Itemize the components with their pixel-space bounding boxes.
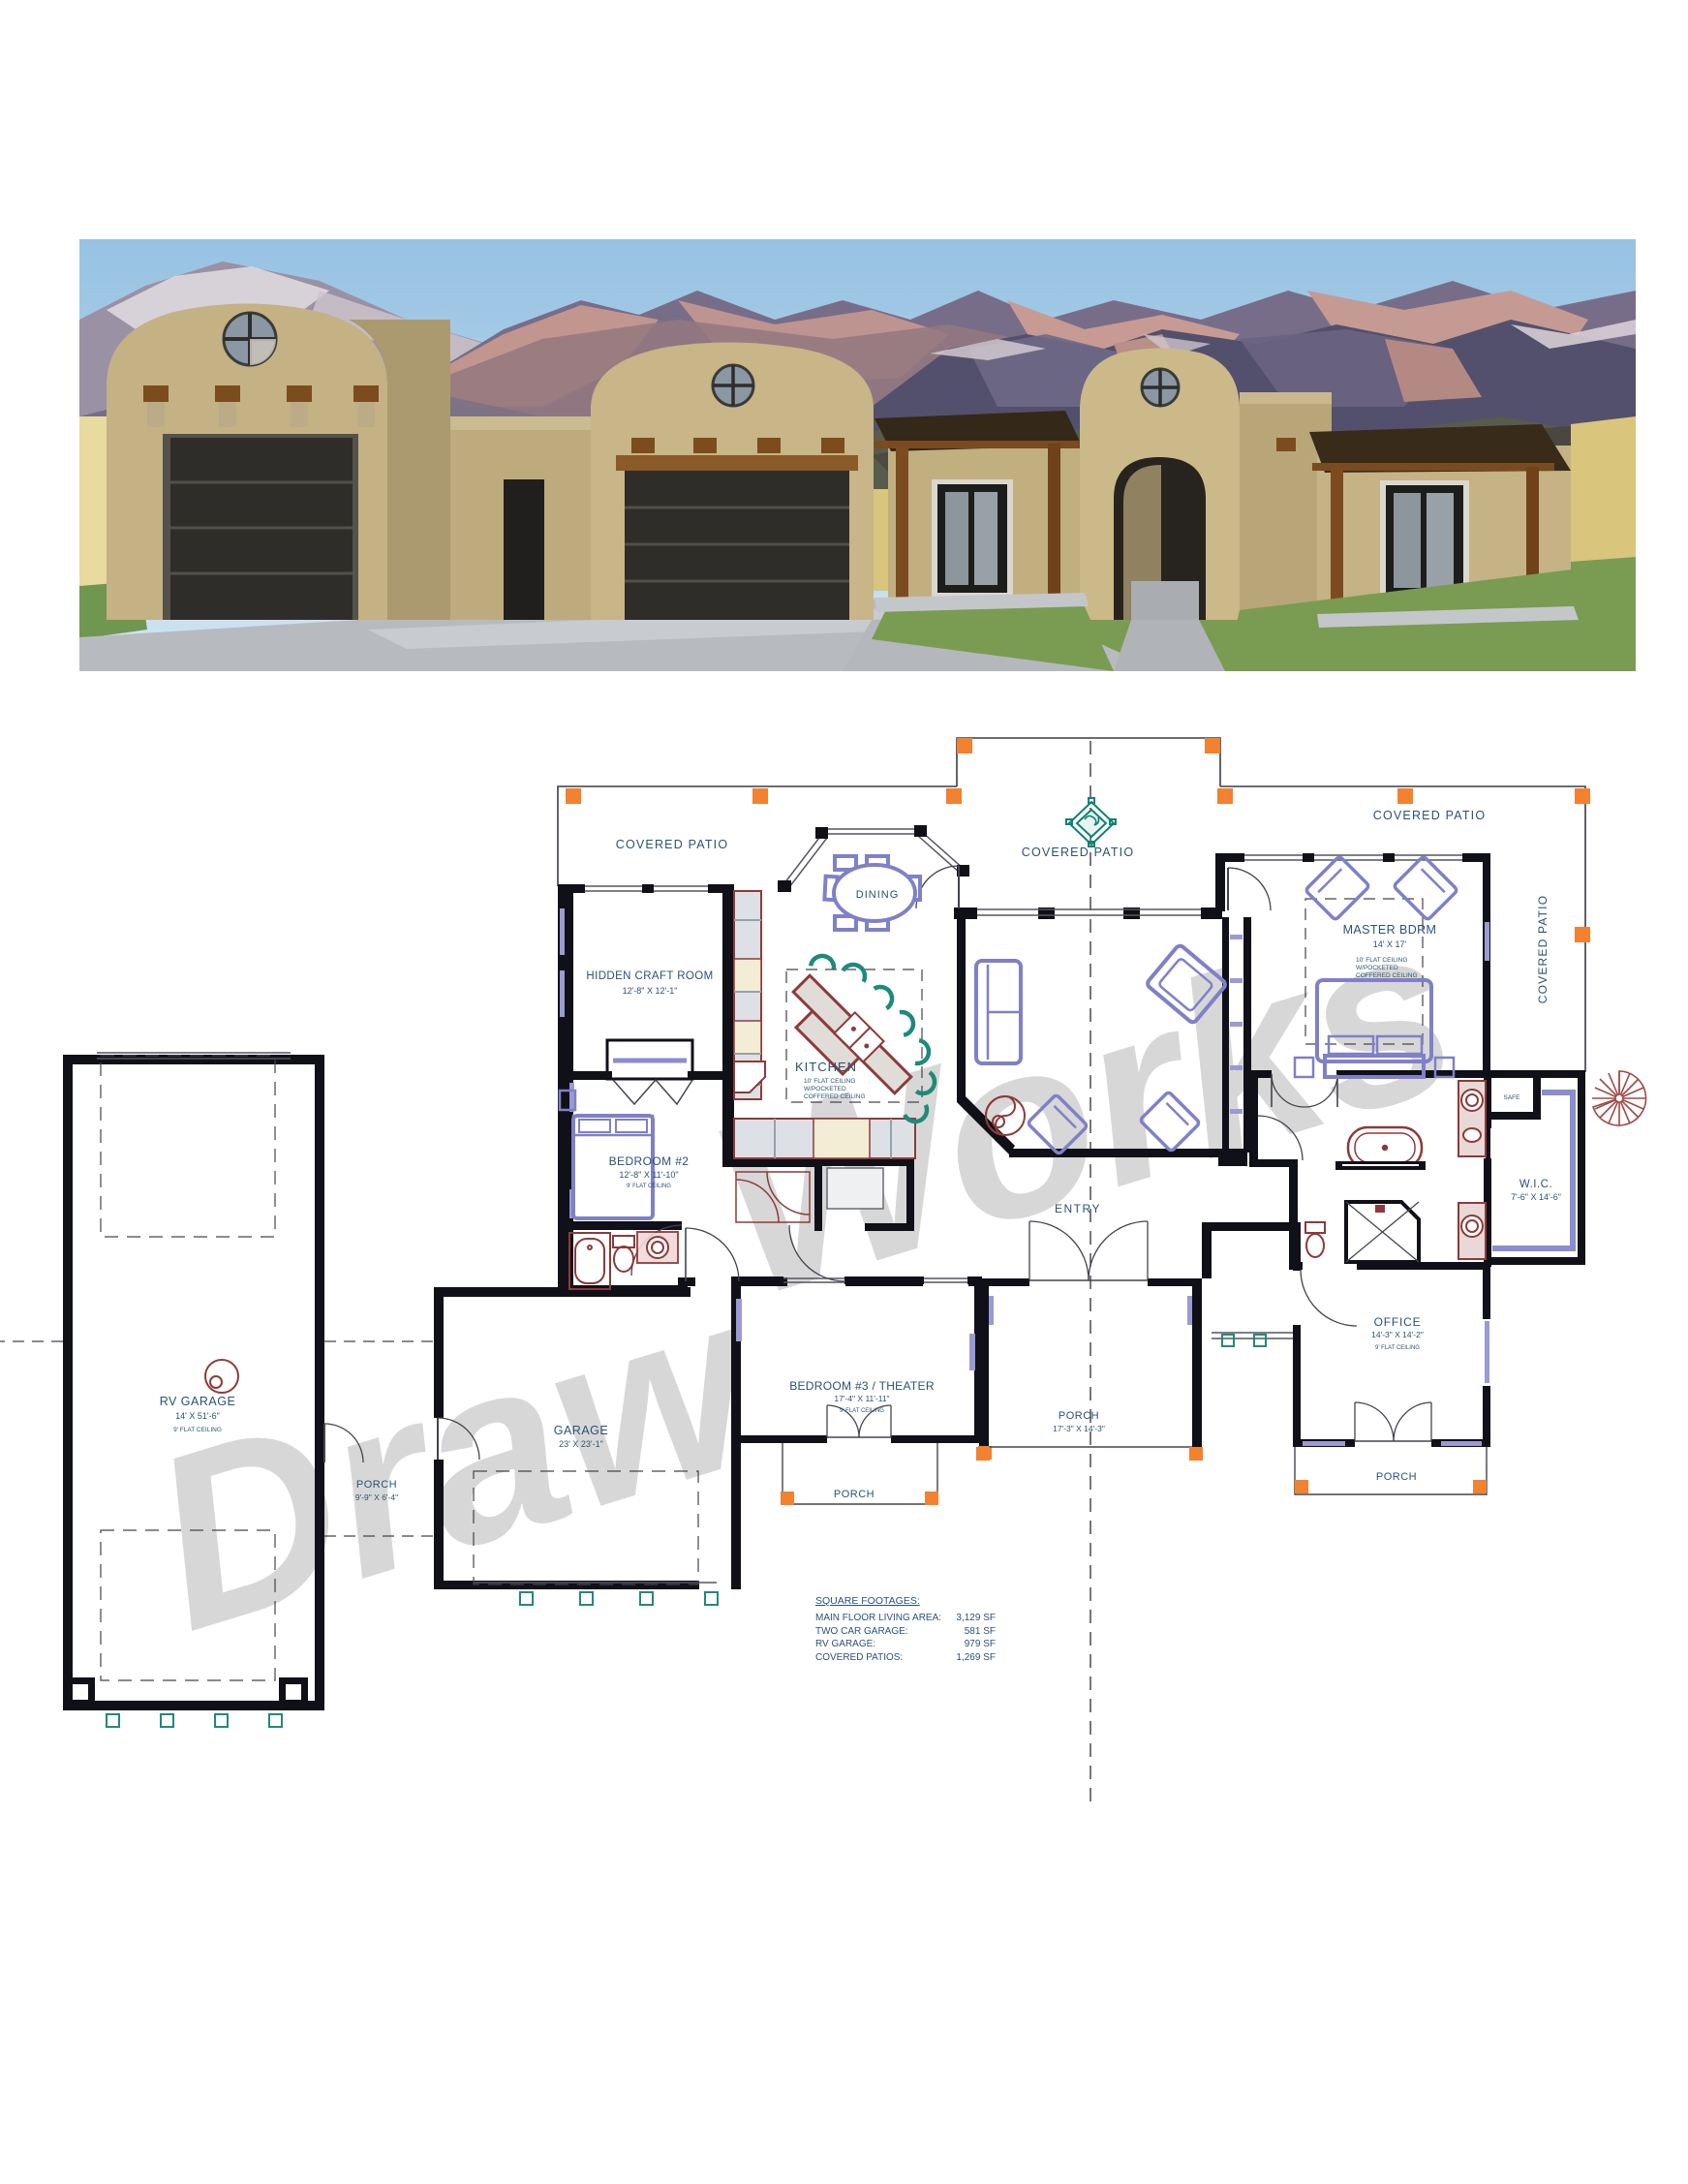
svg-text:14'-3" X 14'-2": 14'-3" X 14'-2" [1371, 1330, 1424, 1339]
svg-text:BEDROOM #3 / THEATER: BEDROOM #3 / THEATER [789, 1379, 935, 1393]
svg-text:PORCH: PORCH [1376, 1471, 1417, 1483]
svg-text:Works: Works [686, 867, 1484, 1350]
svg-text:ENTRY: ENTRY [1055, 1202, 1101, 1215]
svg-text:581 SF: 581 SF [965, 1626, 996, 1637]
svg-text:10' FLAT CEILING: 10' FLAT CEILING [1356, 957, 1407, 964]
svg-text:W/POCKETED: W/POCKETED [1356, 965, 1398, 971]
svg-text:9' FLAT CEILING: 9' FLAT CEILING [1375, 1345, 1420, 1351]
svg-text:23' X 23'-1": 23' X 23'-1" [559, 1439, 603, 1449]
svg-text:12'-8" X 11'-10": 12'-8" X 11'-10" [619, 1170, 678, 1180]
svg-text:979 SF: 979 SF [965, 1639, 996, 1649]
svg-text:12'-8" X 12'-1": 12'-8" X 12'-1" [623, 986, 678, 996]
svg-text:KITCHEN: KITCHEN [795, 1060, 857, 1074]
svg-text:MASTER BDRM: MASTER BDRM [1343, 923, 1437, 937]
svg-text:RV GARAGE:: RV GARAGE: [815, 1639, 875, 1649]
svg-text:1,269 SF: 1,269 SF [956, 1652, 996, 1663]
svg-text:14' X 51'-6": 14' X 51'-6" [175, 1411, 220, 1421]
svg-text:9'-9" X 6'-4": 9'-9" X 6'-4" [355, 1492, 398, 1502]
svg-text:MAIN FLOOR LIVING AREA:: MAIN FLOOR LIVING AREA: [815, 1613, 941, 1623]
svg-text:COVERED PATIO: COVERED PATIO [1536, 895, 1550, 1004]
svg-text:9' FLAT CEILING: 9' FLAT CEILING [173, 1427, 222, 1433]
svg-text:14' X 17': 14' X 17' [1373, 939, 1407, 949]
svg-text:OFFICE: OFFICE [1374, 1315, 1422, 1329]
svg-text:RV GARAGE: RV GARAGE [160, 1395, 236, 1408]
svg-text:10' FLAT CEILING: 10' FLAT CEILING [804, 1078, 855, 1085]
svg-text:W/POCKETED: W/POCKETED [804, 1086, 846, 1092]
svg-text:17'-3" X 14'-3": 17'-3" X 14'-3" [1053, 1424, 1105, 1433]
svg-text:COVERED PATIO: COVERED PATIO [1022, 846, 1135, 859]
svg-text:BEDROOM #2: BEDROOM #2 [609, 1154, 690, 1168]
svg-text:7'-6" X 14'-6": 7'-6" X 14'-6" [1511, 1192, 1561, 1202]
svg-text:COVERED PATIOS:: COVERED PATIOS: [815, 1652, 903, 1663]
svg-text:PORCH: PORCH [834, 1489, 875, 1500]
svg-text:3,129 SF: 3,129 SF [956, 1613, 996, 1623]
svg-text:9' FLAT CEILING: 9' FLAT CEILING [840, 1408, 884, 1414]
svg-text:TWO CAR GARAGE:: TWO CAR GARAGE: [815, 1626, 908, 1637]
svg-text:COFFERED CEILING: COFFERED CEILING [1356, 972, 1418, 979]
svg-text:17'-4" X 11'-11": 17'-4" X 11'-11" [834, 1394, 889, 1403]
svg-text:COVERED PATIO: COVERED PATIO [1373, 809, 1487, 822]
svg-text:PORCH: PORCH [1059, 1410, 1099, 1422]
svg-text:9' FLAT CEILING: 9' FLAT CEILING [627, 1184, 671, 1189]
svg-text:Draw: Draw [123, 1239, 794, 1683]
svg-text:PORCH: PORCH [356, 1479, 397, 1491]
svg-text:GARAGE: GARAGE [554, 1424, 609, 1437]
svg-text:COFFERED CEILING: COFFERED CEILING [804, 1093, 866, 1100]
svg-text:DINING: DINING [856, 889, 900, 901]
svg-text:SQUARE FOOTAGES:: SQUARE FOOTAGES: [815, 1595, 920, 1607]
svg-text:HIDDEN CRAFT ROOM: HIDDEN CRAFT ROOM [586, 970, 713, 982]
svg-text:SAFE: SAFE [1504, 1094, 1521, 1101]
svg-text:W.I.C.: W.I.C. [1519, 1179, 1552, 1190]
svg-text:COVERED PATIO: COVERED PATIO [616, 838, 729, 851]
